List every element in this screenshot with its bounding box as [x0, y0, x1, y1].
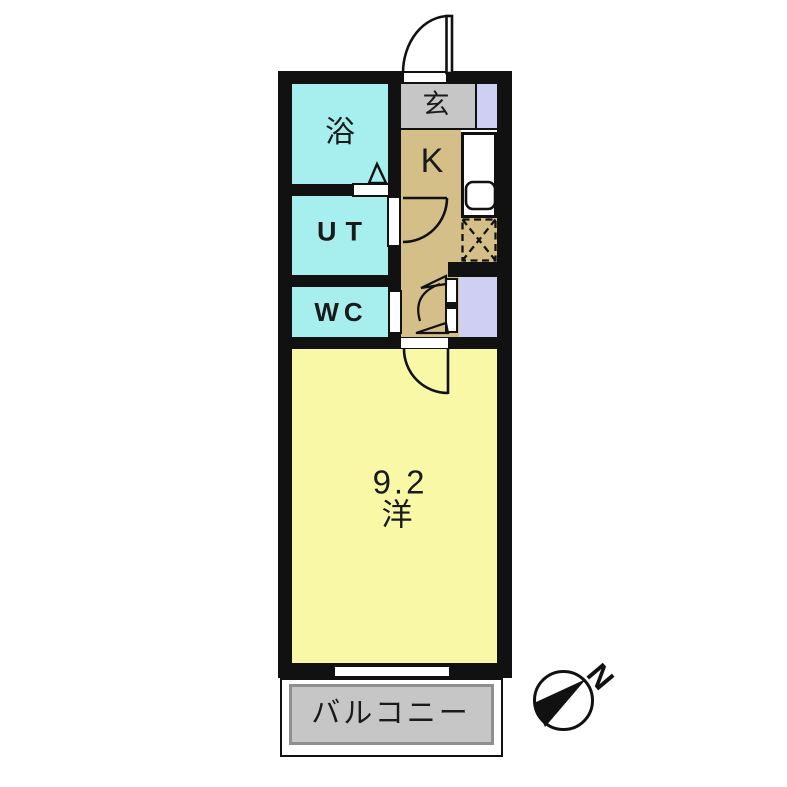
wall: [278, 71, 512, 84]
compass-icon: N: [534, 657, 621, 730]
main-room-size: 9.2: [373, 466, 428, 499]
main-room-type: 洋: [382, 500, 413, 531]
storage-closet: [459, 277, 497, 337]
wall: [388, 245, 401, 292]
shoe-closet: [477, 84, 497, 128]
wall: [448, 262, 497, 277]
entrance-label: 玄: [423, 92, 450, 119]
floorplan: 浴 UT WC 玄 K 9.2 洋 バルコニー: [0, 0, 787, 787]
kitchen-label: K: [421, 144, 444, 178]
wall: [497, 71, 512, 678]
wall: [401, 128, 497, 130]
closet-jamb: [445, 307, 458, 333]
balcony-label: バルコニー: [311, 700, 470, 729]
compass-north-label: N: [580, 657, 621, 697]
wall: [475, 84, 477, 128]
window: [333, 665, 451, 678]
entrance-door-icon: [403, 16, 452, 73]
wall: [448, 337, 497, 349]
kitchen-counter: [461, 132, 497, 218]
bath-label: 浴: [325, 118, 355, 148]
toilet-label: WC: [314, 299, 367, 325]
wall: [388, 84, 401, 197]
toilet-door-opening: [388, 290, 402, 334]
refrigerator-space: [461, 218, 497, 262]
entrance-door-opening: [402, 71, 448, 84]
utility-door-opening: [387, 196, 401, 247]
closet-jamb: [445, 278, 458, 304]
utility-label: UT: [317, 219, 371, 246]
wall: [292, 275, 388, 287]
main-door-opening: [401, 338, 448, 348]
wall: [278, 71, 292, 678]
bath-door-opening: [352, 183, 390, 197]
